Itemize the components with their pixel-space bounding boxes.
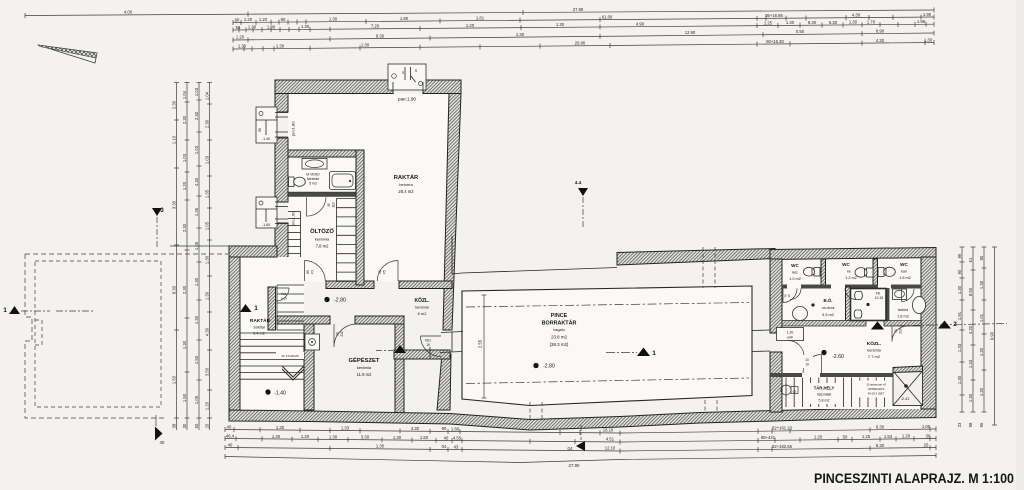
svg-text:2.30: 2.30 xyxy=(171,100,176,109)
svg-text:7.20: 7.20 xyxy=(371,24,380,29)
svg-text:8.30: 8.30 xyxy=(876,443,885,448)
svg-text:1.20: 1.20 xyxy=(787,331,794,335)
svg-text:-1.60: -1.60 xyxy=(262,223,270,227)
svg-text:tartóra: tartóra xyxy=(898,308,908,312)
svg-text:10: 10 xyxy=(805,358,809,362)
svg-text:kerámia: kerámia xyxy=(357,365,372,370)
svg-text:1.80: 1.80 xyxy=(400,16,409,21)
svg-text:4.30: 4.30 xyxy=(411,426,420,431)
svg-text:1.10: 1.10 xyxy=(171,135,176,144)
svg-text:12.10: 12.10 xyxy=(605,446,616,451)
svg-text:61.00: 61.00 xyxy=(602,14,613,19)
svg-text:1.50: 1.50 xyxy=(194,355,199,364)
svg-text:2.30: 2.30 xyxy=(204,119,209,128)
svg-text:1.81: 1.81 xyxy=(476,15,485,20)
svg-text:4.55: 4.55 xyxy=(453,435,462,440)
svg-text:1.80: 1.80 xyxy=(267,24,276,29)
svg-text:BORRAKTÁR: BORRAKTÁR xyxy=(542,320,577,327)
svg-text:8.50: 8.50 xyxy=(968,287,973,296)
svg-text:1.20: 1.20 xyxy=(902,434,911,439)
svg-text:1.30: 1.30 xyxy=(238,44,247,49)
svg-text:1.03: 1.03 xyxy=(194,145,199,154)
svg-text:1.30: 1.30 xyxy=(979,347,984,356)
svg-text:használat: használat xyxy=(817,393,832,397)
svg-text:19: 19 xyxy=(787,294,791,298)
svg-text:1.50: 1.50 xyxy=(182,393,187,402)
svg-text:1.30: 1.30 xyxy=(204,255,209,264)
svg-text:1.30: 1.30 xyxy=(194,315,199,324)
svg-text:kerámia: kerámia xyxy=(315,237,330,242)
svg-text:4.20: 4.20 xyxy=(968,325,973,334)
svg-text:1.05: 1.05 xyxy=(204,221,209,230)
svg-text:8.90: 8.90 xyxy=(876,28,885,33)
svg-text:40: 40 xyxy=(160,440,165,445)
svg-text:90: 90 xyxy=(336,332,340,336)
svg-text:kerámia: kerámia xyxy=(415,306,429,310)
svg-text:90: 90 xyxy=(378,270,382,274)
svg-text:1.20: 1.20 xyxy=(244,17,253,22)
svg-text:1.20: 1.20 xyxy=(204,401,209,410)
svg-text:kan: kan xyxy=(901,270,907,274)
svg-text:1.70: 1.70 xyxy=(867,20,876,25)
svg-text:4.30: 4.30 xyxy=(876,38,885,43)
svg-text:1.35: 1.35 xyxy=(204,189,209,198)
svg-text:1.20: 1.20 xyxy=(182,181,187,190)
svg-text:RAKTÁR: RAKTÁR xyxy=(394,174,419,181)
svg-text:1.03: 1.03 xyxy=(204,155,209,164)
svg-text:1: 1 xyxy=(254,305,258,312)
svg-text:1.01: 1.01 xyxy=(979,313,984,322)
svg-text:27.90: 27.90 xyxy=(573,7,584,12)
svg-text:04: 04 xyxy=(568,446,573,451)
svg-text:1.98: 1.98 xyxy=(917,19,926,24)
svg-text:82+161.23: 82+161.23 xyxy=(772,426,793,431)
svg-text:1.30: 1.30 xyxy=(204,291,209,300)
svg-text:1.30: 1.30 xyxy=(248,25,257,30)
svg-text:8.30: 8.30 xyxy=(171,285,176,294)
svg-text:hagalu: hagalu xyxy=(553,328,564,332)
svg-text:1.50: 1.50 xyxy=(171,375,176,384)
svg-text:110: 110 xyxy=(332,202,336,207)
svg-text:9.90: 9.90 xyxy=(989,331,994,340)
svg-text:18.10: 18.10 xyxy=(603,428,614,433)
svg-text:15: 15 xyxy=(327,203,331,207)
svg-text:pm:1.80: pm:1.80 xyxy=(291,121,296,136)
svg-text:85+16.85: 85+16.85 xyxy=(765,13,783,18)
svg-text:1.30: 1.30 xyxy=(276,43,285,48)
svg-text:40: 40 xyxy=(444,435,449,440)
svg-text:4.30: 4.30 xyxy=(194,177,199,186)
svg-text:80: 80 xyxy=(306,270,310,274)
svg-text:WC: WC xyxy=(900,262,908,267)
svg-text:4.00: 4.00 xyxy=(124,10,133,15)
svg-text:1.30: 1.30 xyxy=(329,434,338,439)
svg-text:12.90: 12.90 xyxy=(685,30,696,35)
svg-text:1.30: 1.30 xyxy=(979,280,984,289)
svg-text:1.25: 1.25 xyxy=(764,20,773,25)
svg-text:1.30: 1.30 xyxy=(393,435,402,440)
svg-text:1.25: 1.25 xyxy=(862,434,871,439)
svg-text:1.30: 1.30 xyxy=(957,375,962,384)
svg-text:PINCESZINTI ALAPRAJZ. M 1:100: PINCESZINTI ALAPRAJZ. M 1:100 xyxy=(814,471,1014,487)
svg-text:98: 98 xyxy=(968,422,973,427)
svg-text:1.05: 1.05 xyxy=(194,395,199,404)
svg-text:KÖZL.: KÖZL. xyxy=(867,340,881,347)
svg-text:1.30: 1.30 xyxy=(556,22,565,27)
svg-text:90: 90 xyxy=(235,17,240,22)
svg-text:URTRECETA: URTRECETA xyxy=(868,387,885,391)
svg-text:1.33: 1.33 xyxy=(957,343,962,352)
svg-text:04: 04 xyxy=(442,444,447,449)
svg-text:u40: u40 xyxy=(787,336,793,340)
svg-text:58: 58 xyxy=(236,25,241,30)
svg-text:RAKTÁR: RAKTÁR xyxy=(250,317,271,324)
svg-text:1.30: 1.30 xyxy=(276,425,285,430)
svg-text:9.30: 9.30 xyxy=(808,20,817,25)
svg-text:kerámia: kerámia xyxy=(867,349,881,353)
svg-text:19: 19 xyxy=(805,363,809,367)
svg-text:96: 96 xyxy=(957,253,962,258)
svg-text:pae:1.90: pae:1.90 xyxy=(398,97,416,102)
svg-text:2: 2 xyxy=(953,321,957,328)
svg-text:23: 23 xyxy=(957,422,962,427)
svg-text:90: 90 xyxy=(281,17,286,22)
svg-text:1.30: 1.30 xyxy=(979,387,984,396)
svg-text:4.90: 4.90 xyxy=(636,21,645,26)
svg-text:1.00: 1.00 xyxy=(922,424,931,429)
svg-text:5.8 m2: 5.8 m2 xyxy=(819,399,830,403)
svg-text:7,8 m2: 7,8 m2 xyxy=(316,244,329,249)
svg-text:1.91: 1.91 xyxy=(957,311,962,320)
svg-text:7.7 m2: 7.7 m2 xyxy=(868,354,881,359)
svg-text:betonra: betonra xyxy=(399,182,413,187)
svg-text:-2.80: -2.80 xyxy=(543,364,555,370)
svg-text:-1.40: -1.40 xyxy=(274,391,286,397)
svg-text:1.53: 1.53 xyxy=(884,434,893,439)
svg-text:1.0 m2: 1.0 m2 xyxy=(789,277,801,281)
svg-text:82+162.65: 82+162.65 xyxy=(772,444,793,449)
svg-text:1.30: 1.30 xyxy=(329,17,338,22)
svg-text:2.55: 2.55 xyxy=(478,339,483,348)
svg-text:3.50: 3.50 xyxy=(204,367,209,376)
svg-text:30: 30 xyxy=(182,423,187,428)
svg-text:46.4: 46.4 xyxy=(226,433,235,438)
svg-text:-2.80: -2.80 xyxy=(334,298,346,304)
svg-text:3.3 m2: 3.3 m2 xyxy=(822,312,835,317)
svg-text:43: 43 xyxy=(454,444,459,449)
svg-text:23.8 m2: 23.8 m2 xyxy=(551,335,567,340)
svg-text:M.VENO: M.VENO xyxy=(306,173,320,177)
svg-text:30: 30 xyxy=(926,433,931,438)
svg-text:kéz: kéz xyxy=(792,271,798,275)
svg-text:4.51: 4.51 xyxy=(606,437,615,442)
svg-text:18: 18 xyxy=(426,343,430,347)
svg-text:1.30: 1.30 xyxy=(957,285,962,294)
svg-text:FD: FD xyxy=(876,292,881,296)
svg-text:1.6 m2: 1.6 m2 xyxy=(899,276,911,280)
svg-text:85+421: 85+421 xyxy=(761,435,776,440)
svg-text:3.30: 3.30 xyxy=(361,435,370,440)
svg-text:40: 40 xyxy=(228,442,233,447)
svg-text:11.9 m2: 11.9 m2 xyxy=(357,372,372,377)
svg-text:1.30: 1.30 xyxy=(361,43,370,48)
svg-text:TÁR.HELY: TÁR.HELY xyxy=(814,386,835,391)
svg-text:1.30: 1.30 xyxy=(924,37,933,42)
svg-text:90: 90 xyxy=(442,426,447,431)
svg-text:M11: M11 xyxy=(425,339,431,343)
svg-text:5.4 m2: 5.4 m2 xyxy=(253,332,265,336)
svg-text:1.03: 1.03 xyxy=(194,87,199,96)
svg-text:1.30: 1.30 xyxy=(272,434,281,439)
svg-text:WC: WC xyxy=(842,262,850,267)
svg-text:2.30: 2.30 xyxy=(182,285,187,294)
svg-text:29.90: 29.90 xyxy=(575,41,586,46)
svg-text:60+16.30: 60+16.30 xyxy=(766,39,784,44)
svg-text:-2.41: -2.41 xyxy=(901,397,910,401)
svg-text:4.30: 4.30 xyxy=(852,12,861,17)
svg-text:20: 20 xyxy=(204,423,209,428)
svg-text:27.90: 27.90 xyxy=(569,463,581,468)
svg-text:1.2 m2: 1.2 m2 xyxy=(845,276,857,280)
svg-text:-1.40: -1.40 xyxy=(262,137,270,141)
svg-text:40: 40 xyxy=(227,424,232,429)
svg-text:F5: F5 xyxy=(383,270,387,274)
svg-text:50: 50 xyxy=(194,423,199,428)
svg-text:3.30: 3.30 xyxy=(171,200,176,209)
svg-text:1.30: 1.30 xyxy=(786,20,795,25)
svg-text:6.30: 6.30 xyxy=(876,425,885,430)
svg-text:1.30: 1.30 xyxy=(516,32,525,37)
svg-text:1.20: 1.20 xyxy=(466,23,475,28)
svg-text:2.30: 2.30 xyxy=(194,111,199,120)
svg-text:(38.3 m2): (38.3 m2) xyxy=(550,342,569,347)
svg-text:2.30: 2.30 xyxy=(182,115,187,124)
svg-text:5.30: 5.30 xyxy=(829,20,838,25)
svg-text:1.30: 1.30 xyxy=(376,444,385,449)
svg-text:KÖZL.: KÖZL. xyxy=(415,297,431,304)
svg-text:20: 20 xyxy=(924,442,929,447)
svg-text:ke: ke xyxy=(847,270,851,274)
svg-text:10 tananmat +8: 10 tananmat +8 xyxy=(866,383,886,387)
svg-text:8.30: 8.30 xyxy=(376,33,385,38)
svg-text:1.30: 1.30 xyxy=(849,20,858,25)
svg-text:210: 210 xyxy=(899,328,903,334)
svg-text:kerámia: kerámia xyxy=(307,177,319,181)
svg-text:1.20: 1.20 xyxy=(814,435,823,440)
svg-text:1.04: 1.04 xyxy=(204,91,209,100)
svg-text:1.90: 1.90 xyxy=(923,12,932,17)
svg-text:1.20: 1.20 xyxy=(236,35,245,40)
svg-text:1F 17x18x25: 1F 17x18x25 xyxy=(281,354,299,358)
svg-text:1.33: 1.33 xyxy=(341,425,350,430)
svg-text:10.15: 10.15 xyxy=(875,296,884,300)
svg-text:Söldtal: Söldtal xyxy=(253,326,265,330)
svg-text:T12: T12 xyxy=(281,292,287,296)
svg-text:0.50: 0.50 xyxy=(796,29,805,34)
svg-text:1.33: 1.33 xyxy=(968,359,973,368)
svg-text:1.30: 1.30 xyxy=(194,277,199,286)
svg-text:1.35: 1.35 xyxy=(194,207,199,216)
svg-text:va-dcra: va-dcra xyxy=(822,306,836,310)
svg-text:28.4 m2: 28.4 m2 xyxy=(398,189,414,194)
svg-text:40 09.3 (SET: 40 09.3 (SET xyxy=(868,392,885,396)
svg-text:88: 88 xyxy=(258,128,262,132)
svg-text:1.80: 1.80 xyxy=(451,426,460,431)
svg-text:ÖLTÖZŐ: ÖLTÖZŐ xyxy=(310,228,334,235)
svg-text:1.20: 1.20 xyxy=(259,17,268,22)
svg-text:5 m2: 5 m2 xyxy=(309,182,317,186)
svg-text:F3: F3 xyxy=(311,270,315,274)
svg-text:1.30: 1.30 xyxy=(301,24,310,29)
svg-text:1.8 m3: 1.8 m3 xyxy=(897,315,909,319)
svg-text:38: 38 xyxy=(171,423,176,428)
svg-text:2.30: 2.30 xyxy=(182,223,187,232)
svg-text:1.20: 1.20 xyxy=(301,434,310,439)
svg-text:1.50: 1.50 xyxy=(420,435,429,440)
svg-text:1.30: 1.30 xyxy=(968,393,973,402)
svg-text:90: 90 xyxy=(894,329,898,333)
svg-text:1.03: 1.03 xyxy=(182,153,187,162)
svg-text:GÉPÉSZET: GÉPÉSZET xyxy=(349,356,380,364)
svg-text:4.4: 4.4 xyxy=(575,180,582,185)
svg-text:90: 90 xyxy=(957,269,962,274)
svg-text:1.30: 1.30 xyxy=(182,340,187,349)
svg-text:6.19: 6.19 xyxy=(281,297,287,301)
svg-text:1.04: 1.04 xyxy=(182,90,187,99)
svg-text:50: 50 xyxy=(843,434,848,439)
svg-text:210: 210 xyxy=(340,331,344,337)
svg-text:4.30: 4.30 xyxy=(204,327,209,336)
svg-text:95: 95 xyxy=(979,422,984,427)
svg-text:8 m2: 8 m2 xyxy=(418,311,428,316)
svg-text:(0): (0) xyxy=(793,390,797,394)
svg-text:1: 1 xyxy=(652,350,656,357)
svg-text:B.Ö.: B.Ö. xyxy=(823,298,832,303)
svg-text:90: 90 xyxy=(979,255,984,260)
svg-text:1: 1 xyxy=(3,307,7,314)
svg-text:61: 61 xyxy=(968,257,973,262)
svg-text:-2.60: -2.60 xyxy=(832,354,844,360)
svg-text:PINCE: PINCE xyxy=(551,313,568,319)
svg-text:WC: WC xyxy=(791,263,799,268)
